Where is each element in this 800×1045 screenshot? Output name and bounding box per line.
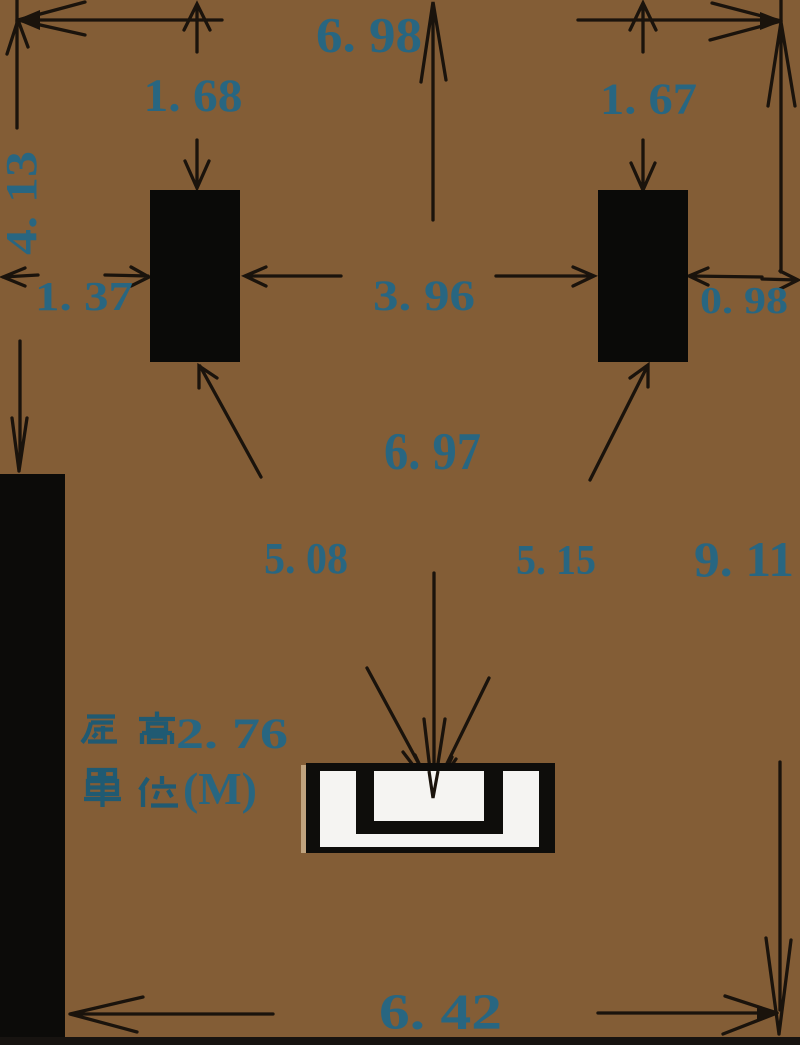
svg-text:4. 13: 4. 13 — [0, 151, 46, 255]
svg-text:6. 42: 6. 42 — [379, 985, 502, 1041]
svg-text:6. 98: 6. 98 — [316, 7, 422, 63]
svg-text:9. 11: 9. 11 — [694, 531, 794, 587]
svg-text:1. 67: 1. 67 — [600, 75, 697, 124]
svg-text:0. 98: 0. 98 — [700, 280, 788, 322]
svg-text:5. 15: 5. 15 — [516, 538, 596, 584]
svg-text:(M): (M) — [183, 763, 257, 814]
svg-text:1. 37: 1. 37 — [35, 273, 133, 319]
svg-text:6. 97: 6. 97 — [384, 423, 481, 481]
svg-text:5. 08: 5. 08 — [264, 534, 348, 583]
svg-text:1. 68: 1. 68 — [144, 70, 243, 122]
svg-text:2. 76: 2. 76 — [176, 711, 288, 758]
svg-text:3. 96: 3. 96 — [373, 273, 475, 320]
